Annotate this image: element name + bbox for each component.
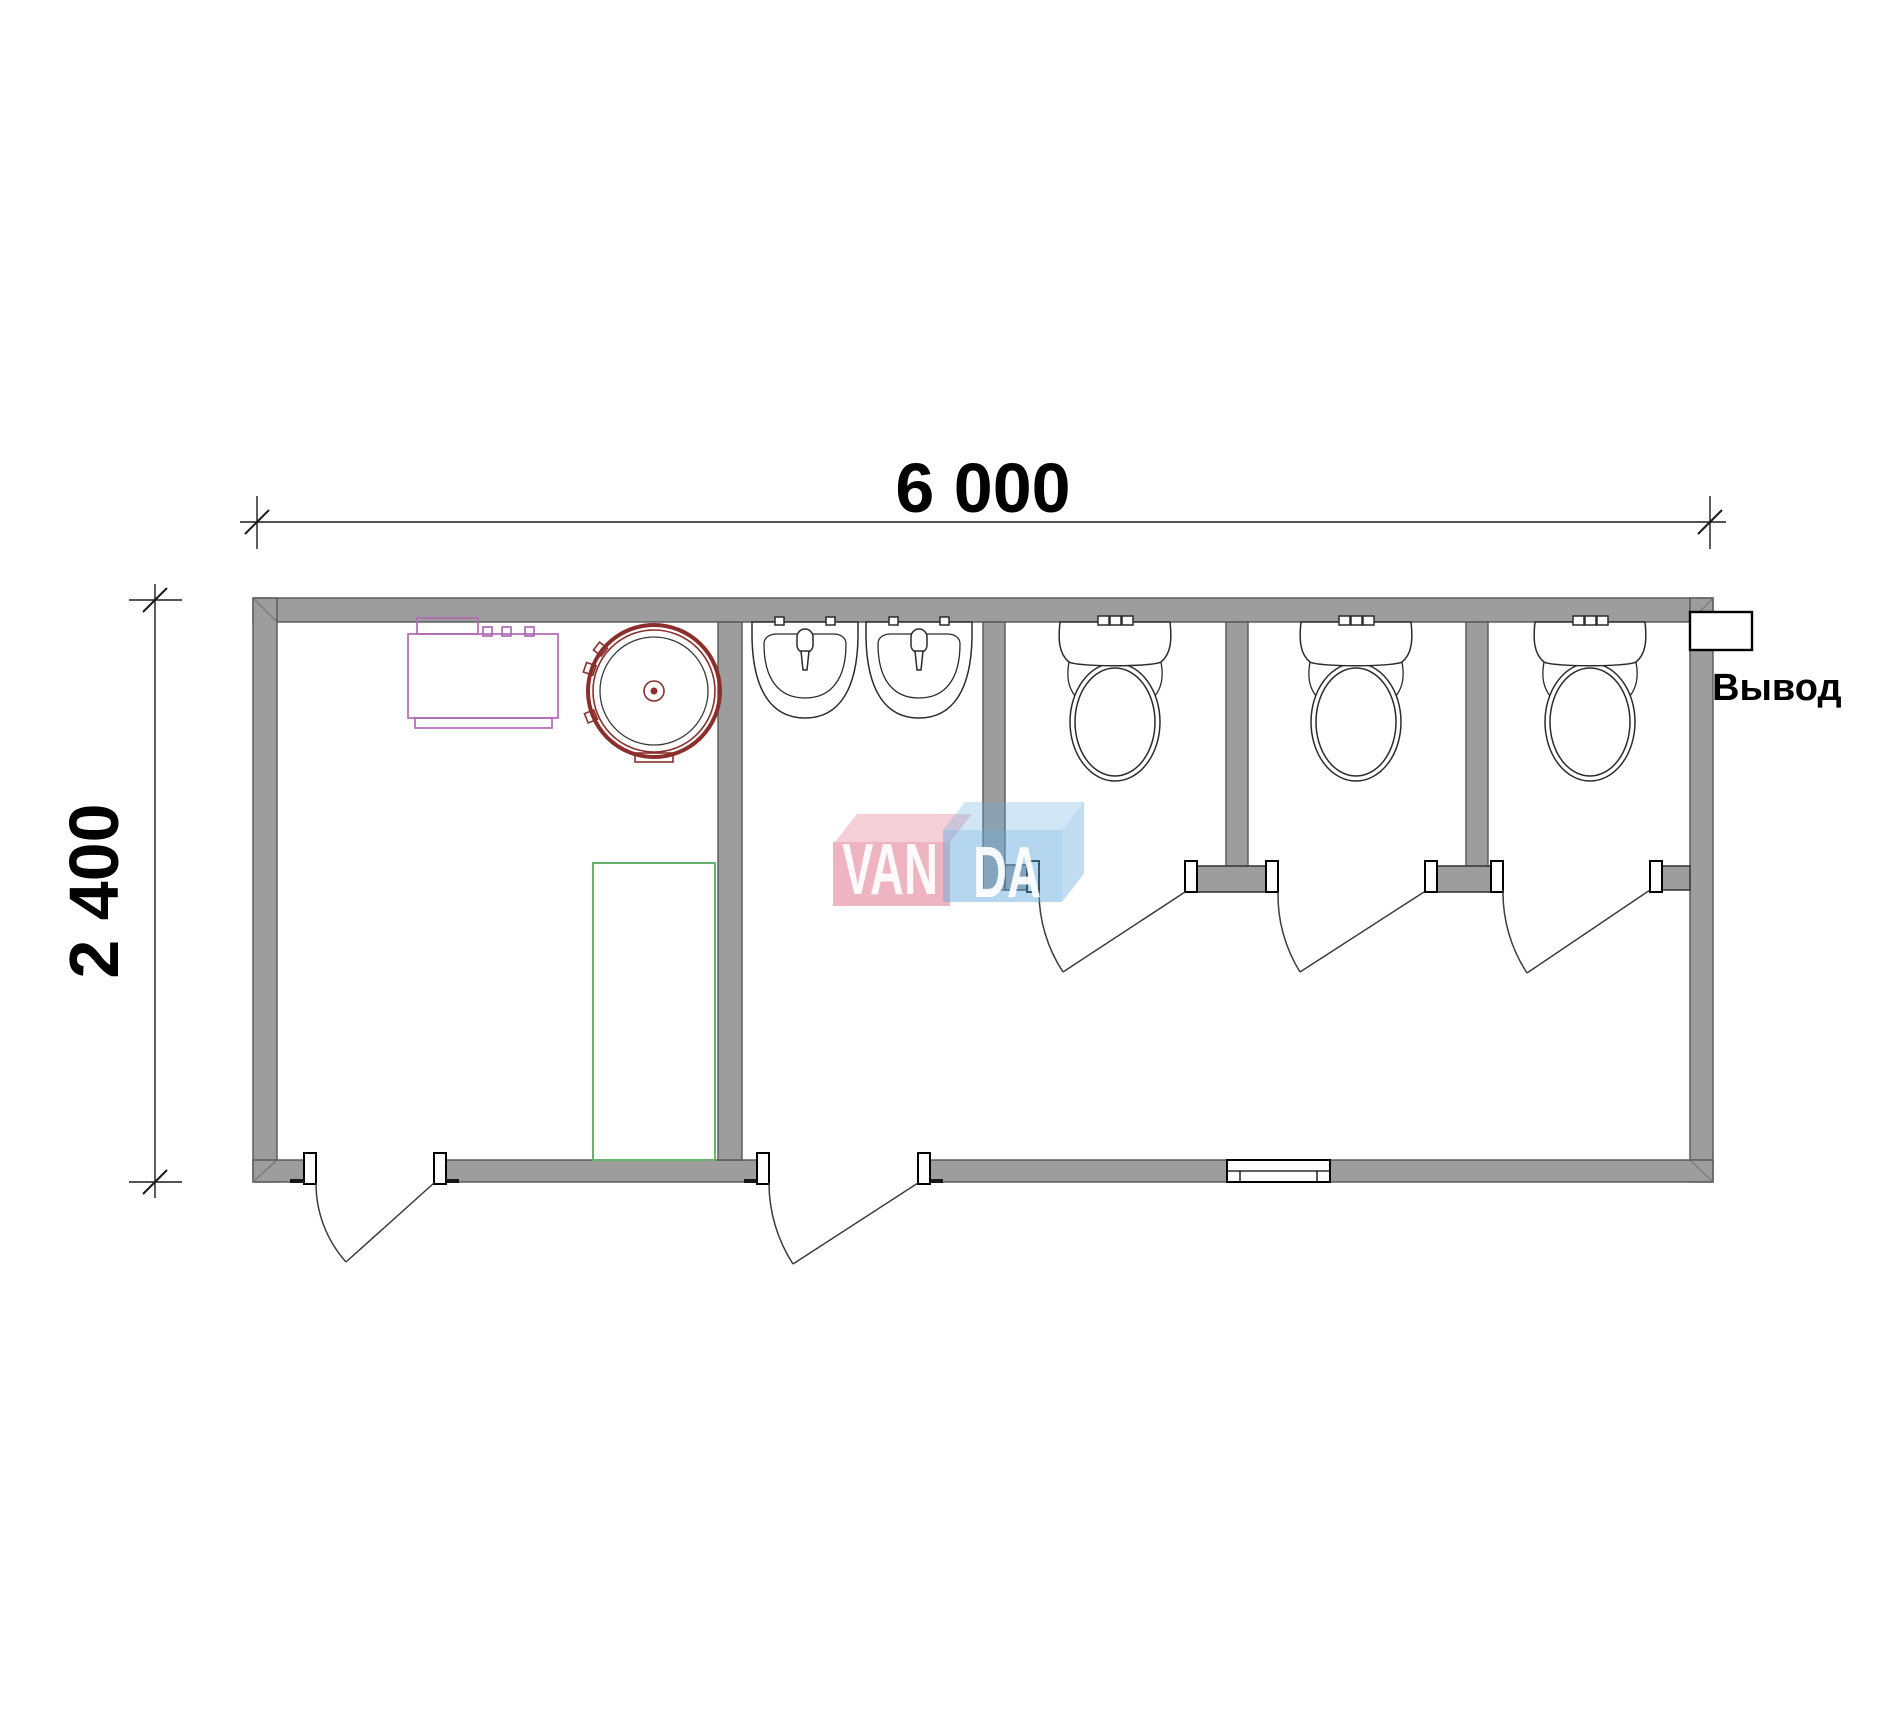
wall-south-seg4 (1330, 1160, 1713, 1182)
vanda-watermark: VAN DA (833, 802, 1084, 913)
dimension-width-label: 6 000 (895, 449, 1070, 527)
wall-west (253, 598, 277, 1182)
dimension-width: 6 000 (240, 449, 1726, 549)
watermark-text-left: VAN (842, 830, 938, 910)
door-stall-3 (1503, 890, 1650, 973)
wall-stub (1662, 866, 1690, 890)
doors (316, 890, 1650, 1264)
dimension-height: 2 400 (55, 584, 182, 1198)
partition-techroom (718, 622, 742, 1160)
electric-boiler-icon (408, 618, 558, 728)
floor-plan-page: 6 000 2 400 (0, 0, 1902, 1717)
wall-south-seg2 (446, 1160, 757, 1182)
watermark-text-right: DA (973, 833, 1041, 913)
wall-east (1690, 598, 1713, 1182)
partition-stall-1-2 (1226, 622, 1248, 868)
washbasin-icon (752, 617, 858, 718)
toilet-icon (1059, 616, 1171, 781)
dimension-height-label: 2 400 (55, 803, 133, 978)
shower-tray-icon (593, 863, 715, 1160)
water-heater-icon (583, 625, 720, 762)
door-techroom (316, 1183, 434, 1262)
door-washroom (769, 1183, 918, 1264)
outlet-box-icon (1690, 612, 1752, 650)
toilet-icon (1534, 616, 1646, 781)
outlet-label: Вывод (1712, 667, 1842, 709)
wall-south-seg3 (930, 1160, 1227, 1182)
wall-stub (1197, 866, 1266, 892)
floor-plan-drawing: 6 000 2 400 (0, 0, 1902, 1717)
washbasin-icon (866, 617, 972, 718)
partition-stall-2-3 (1466, 622, 1488, 868)
toilet-icon (1300, 616, 1412, 781)
window-opening (1227, 1160, 1330, 1182)
door-stall-2 (1278, 892, 1424, 972)
door-stall-1 (1039, 892, 1185, 972)
wall-stub (1437, 866, 1491, 892)
wall-south-seg1 (253, 1160, 304, 1182)
